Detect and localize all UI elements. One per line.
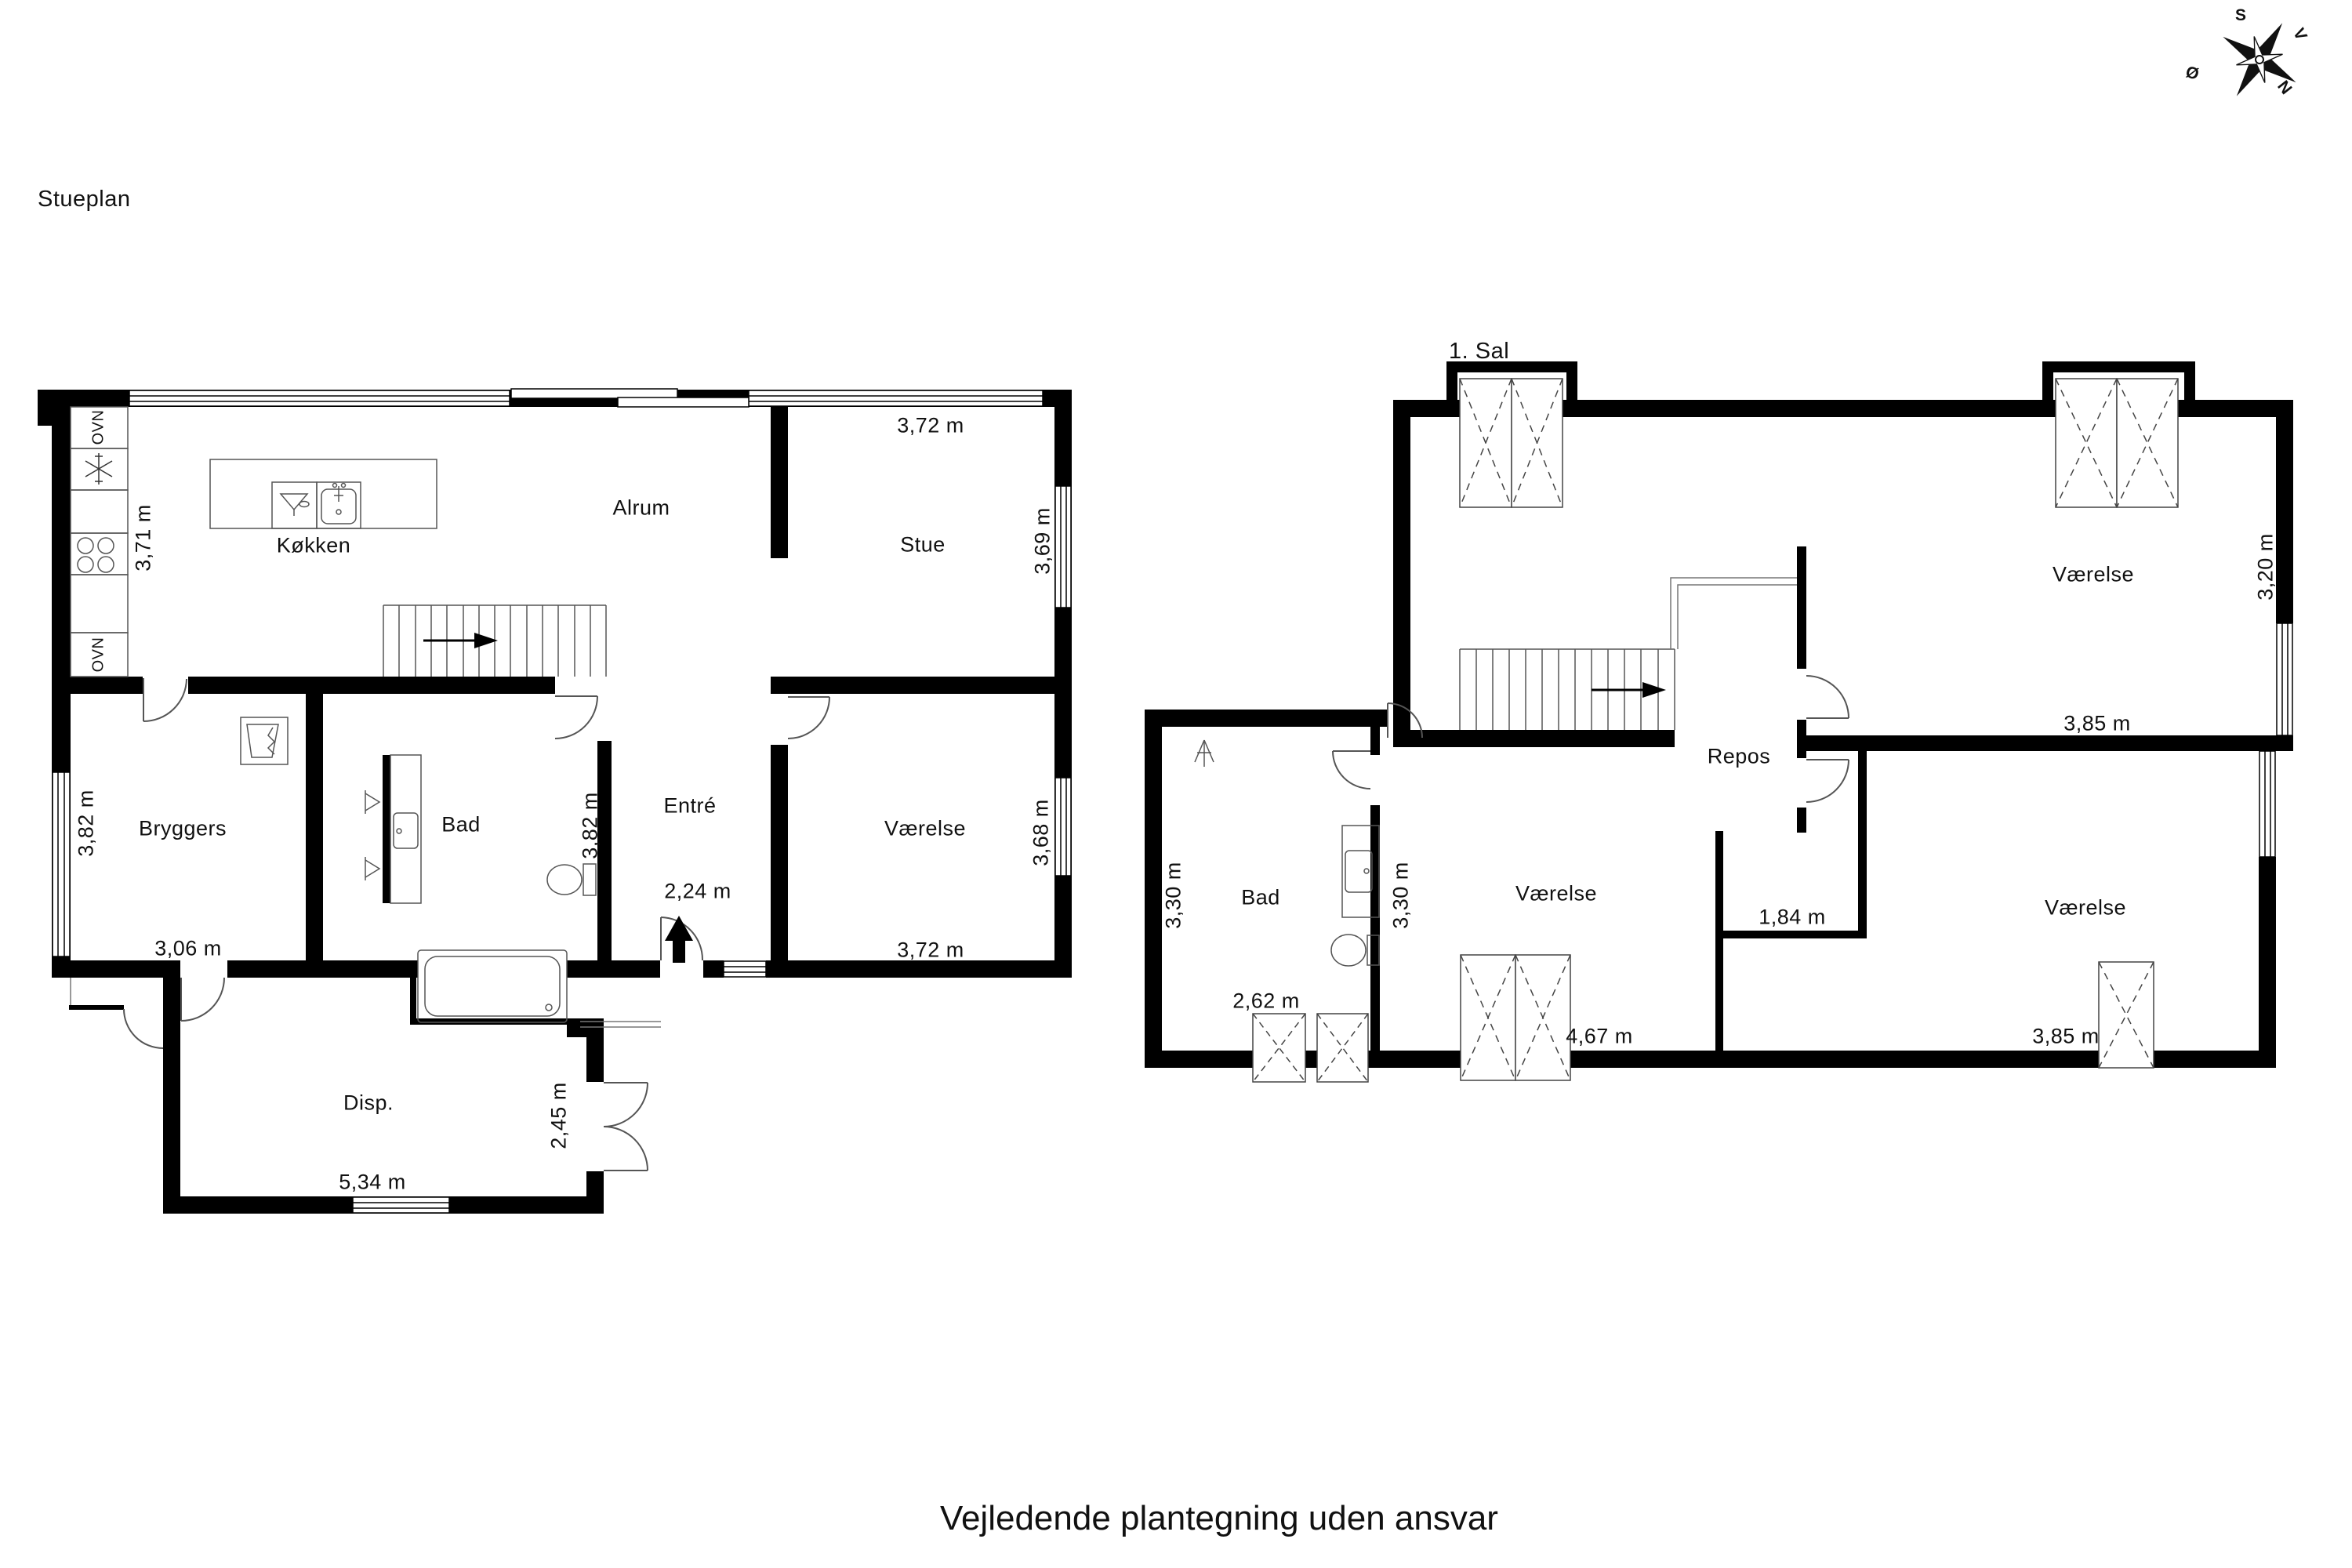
room-label-vaerelse3: Værelse	[2053, 563, 2134, 587]
dim-vaerelse4-width: 3,85 m	[2032, 1025, 2100, 1049]
shower-icon	[1195, 740, 1214, 767]
dim-entre-width: 2,24 m	[664, 880, 731, 904]
dim-vaerelse3-height: 3,20 m	[2254, 533, 2278, 601]
dim-vaerelse2-height: 3,30 m	[1389, 862, 1414, 929]
stairs-direction-arrow	[1592, 682, 1666, 698]
skylight-single-icon	[2099, 962, 2154, 1068]
bryggers-fixtures	[241, 717, 288, 764]
room-label-entre: Entré	[663, 794, 716, 818]
skylight-double-icon	[2056, 379, 2178, 507]
skylight-double-icon	[1460, 379, 1563, 507]
room-label-vaerelse4: Værelse	[2045, 896, 2126, 920]
room-label-vaerelse1: Værelse	[884, 817, 966, 841]
dim-vaerelse2-width: 4,67 m	[1566, 1025, 1633, 1049]
dim-disp-height: 2,45 m	[547, 1082, 572, 1149]
stueplan-doors	[71, 678, 829, 1171]
bad-fixtures	[365, 755, 596, 1022]
disclaimer-caption: Vejledende plantegning uden ansvar	[823, 1499, 1615, 1538]
dim-bad1-height: 3,82 m	[579, 792, 603, 859]
label-ovn-bottom: OVN	[90, 637, 108, 673]
entrance-arrow	[665, 916, 693, 963]
room-label-repos: Repos	[1708, 745, 1771, 769]
dim-bryggers-height: 3,82 m	[74, 789, 99, 857]
compass-rose-icon	[2200, 0, 2319, 119]
room-label-disp: Disp.	[343, 1091, 394, 1116]
label-ovn-top: OVN	[90, 410, 108, 445]
bathtub-icon	[418, 950, 567, 1022]
room-label-bad1: Bad	[441, 813, 481, 837]
kitchen-cabinets	[71, 407, 128, 677]
sal-bad-fixtures	[1195, 740, 1379, 966]
dim-stue-height: 3,69 m	[1031, 507, 1055, 575]
shower-icon	[365, 857, 379, 880]
room-label-vaerelse2: Værelse	[1515, 882, 1597, 906]
floorplan-page: { "caption": "Vejledende plantegning ude…	[0, 0, 2352, 1568]
dim-vaerelse1-height: 3,68 m	[1029, 799, 1054, 866]
dim-bryggers-width: 3,06 m	[154, 937, 222, 961]
shower-icon	[365, 790, 379, 814]
dim-vaerelse1-width: 3,72 m	[897, 938, 964, 963]
dim-stue-width: 3,72 m	[897, 414, 964, 438]
skylight-single-icon	[1253, 1014, 1305, 1082]
plan-drawing	[0, 0, 2352, 1568]
sal-stairs	[1460, 578, 1797, 730]
room-label-kokken: Køkken	[277, 534, 351, 558]
room-label-bad2: Bad	[1241, 886, 1280, 910]
stairs-direction-arrow	[423, 633, 498, 648]
kitchen-island	[210, 459, 437, 528]
room-label-bryggers: Bryggers	[139, 817, 227, 841]
compass-label-south: S	[2235, 6, 2246, 25]
stueplan-stairs	[383, 605, 606, 677]
dim-passage-width: 1,84 m	[1759, 906, 1826, 930]
dim-bad2-width: 2,62 m	[1232, 989, 1300, 1014]
dim-bad2-height-left: 3,30 m	[1162, 862, 1186, 929]
skylight-double-icon	[1461, 955, 1570, 1080]
dim-disp-width: 5,34 m	[339, 1171, 406, 1195]
room-label-stue: Stue	[900, 533, 946, 557]
freezer-snowflake-icon	[85, 453, 112, 485]
dim-kitchen-height: 3,71 m	[132, 504, 156, 572]
skylight-single-icon	[1317, 1014, 1368, 1082]
dim-vaerelse3-width: 3,85 m	[2063, 712, 2131, 736]
toilet-icon	[547, 864, 596, 895]
plan-title-stueplan: Stueplan	[38, 187, 131, 212]
room-label-alrum: Alrum	[612, 496, 670, 521]
plan-title-sal: 1. Sal	[1449, 339, 1509, 365]
